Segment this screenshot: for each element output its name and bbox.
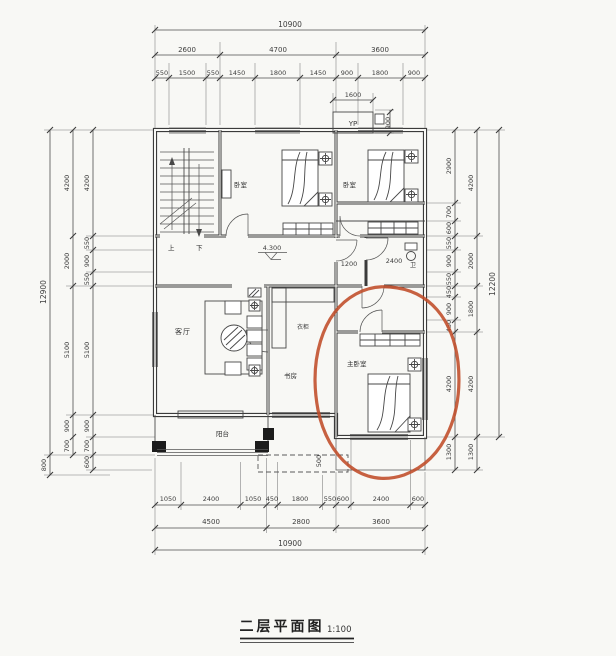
dim-top-det-8: 900	[408, 69, 420, 77]
dim-right-det-5: 550	[445, 273, 453, 285]
dim-top-det-2: 550	[207, 69, 219, 77]
roof-overhang-dashed	[258, 455, 348, 472]
label-balcony: 阳台	[216, 429, 229, 438]
canopy-fixture	[375, 114, 384, 124]
dim-top-det-1: 1500	[179, 69, 196, 77]
dim-top-total: 10900	[278, 20, 302, 29]
label-canopy: YP	[348, 120, 358, 128]
dim-top-det-4: 1800	[270, 69, 287, 77]
dim-right-det-3: 550	[445, 237, 453, 249]
label-wardrobe: 衣柜	[297, 323, 309, 331]
toilet-fixture	[405, 243, 417, 261]
floor-plan-drawing: 10900 2600 4700 3600 550 1500 550 1450 1…	[0, 0, 616, 656]
dim-bath-width: 2400	[386, 257, 403, 265]
level-value: 4.300	[263, 244, 282, 252]
dim-bot-seg-2: 3600	[372, 518, 390, 526]
drawing-title: 二层平面图	[240, 619, 325, 635]
dim-top-det-7: 1800	[372, 69, 389, 77]
dim-right-det-0: 2900	[445, 158, 453, 175]
dim-left-seg-4: 700	[63, 440, 71, 452]
dim-right-total: 12200	[488, 272, 497, 296]
label-master: 主卧室	[347, 359, 367, 368]
dim-canopy-depth: 900	[384, 117, 392, 129]
dining-set	[205, 288, 262, 376]
balcony-column-left	[152, 441, 166, 452]
dim-canopy-width: 1600	[345, 91, 362, 99]
dim-top-seg-1: 4700	[269, 46, 287, 54]
floor-plan-page: 10900 2600 4700 3600 550 1500 550 1450 1…	[0, 0, 616, 656]
balcony-column-right	[255, 441, 269, 452]
dim-bot-det-8: 600	[412, 495, 424, 503]
label-bedroom-mid: 卧室	[234, 180, 248, 189]
cloak-wardrobe	[272, 288, 334, 348]
drawing-scale: 1:100	[327, 625, 352, 635]
dim-right-det-2: 600	[445, 222, 453, 234]
dim-right-det-6: 450	[445, 286, 453, 298]
balcony-railing	[157, 450, 268, 456]
dim-left-det-5: 900	[83, 420, 91, 432]
title-block: 二层平面图 1:100	[240, 619, 355, 643]
dim-bot-seg-0: 4500	[202, 518, 220, 526]
dim-bot-total: 10900	[278, 539, 302, 548]
label-stair-down: 下	[196, 244, 203, 252]
dim-left-seg-3: 900	[63, 420, 71, 432]
dim-bot-det-3: 450	[266, 495, 278, 503]
staircase	[160, 148, 214, 237]
dim-right-det-10: 1300	[445, 444, 453, 461]
dim-bot-det-7: 2400	[373, 495, 390, 503]
dim-left-det-7: 600	[83, 456, 91, 468]
dim-bot-det-2: 1050	[245, 495, 262, 503]
dim-left-det-0: 4200	[83, 175, 91, 192]
dim-bot-det-4: 1800	[292, 495, 309, 503]
dim-left-det-1: 550	[83, 237, 91, 249]
dim-bot-det-0: 1050	[160, 495, 177, 503]
dim-top-det-6: 900	[341, 69, 353, 77]
dim-left-seg-2: 5100	[63, 342, 71, 359]
dim-right-seg-1: 2000	[467, 253, 475, 270]
dim-bot-seg-1: 2800	[292, 518, 310, 526]
extension-lines	[44, 25, 505, 555]
label-study: 书房	[284, 371, 297, 380]
dim-top-det-3: 1450	[229, 69, 246, 77]
label-bedroom-right: 卧室	[343, 180, 357, 189]
bed-middle-bedroom	[222, 150, 332, 206]
bottom-dimensions: 1050 2400 1050 450 1800 550 600 2400 600…	[160, 495, 424, 548]
dimension-lines	[47, 27, 502, 553]
bed-right-bedroom	[368, 150, 418, 202]
corner-column	[263, 428, 274, 440]
dim-right-seg-2: 1800	[467, 301, 475, 318]
dim-right-det-1: 700	[445, 206, 453, 218]
dim-top-det-0: 550	[156, 69, 168, 77]
dim-left-below: 800	[40, 459, 48, 471]
dim-top-seg-2: 3600	[371, 46, 389, 54]
top-dimensions: 10900 2600 4700 3600 550 1500 550 1450 1…	[156, 20, 420, 129]
dim-right-seg-4: 1300	[467, 444, 475, 461]
dim-hall-width: 1200	[341, 260, 358, 268]
dim-right-det-7: 900	[445, 303, 453, 315]
dim-right-det-4: 900	[445, 255, 453, 267]
dim-top-det-5: 1450	[310, 69, 327, 77]
dim-right-seg-3: 4200	[467, 376, 475, 393]
label-living: 客厅	[175, 327, 191, 336]
dim-left-total: 12900	[39, 280, 48, 304]
left-dimensions: 12900 4200 2000 5100 900 700 800 4200 55…	[39, 175, 91, 471]
dim-bot-det-6: 600	[337, 495, 349, 503]
dim-left-det-3: 550	[83, 273, 91, 285]
dim-left-det-2: 900	[83, 255, 91, 267]
dim-left-det-4: 5100	[83, 342, 91, 359]
label-toilet: 卫	[410, 262, 416, 269]
level-marker	[258, 253, 287, 260]
dim-overhang: 500	[315, 455, 323, 467]
bed-master-bedroom	[368, 358, 421, 432]
dim-left-seg-1: 2000	[63, 253, 71, 270]
dim-left-seg-0: 4200	[63, 175, 71, 192]
dim-left-det-6: 700	[83, 440, 91, 452]
dim-right-seg-0: 4200	[467, 175, 475, 192]
dim-bot-det-5: 550	[324, 495, 336, 503]
label-stair-up: 上	[168, 243, 175, 252]
dim-bot-det-1: 2400	[203, 495, 220, 503]
dim-right-det-9: 4200	[445, 376, 453, 393]
dim-top-seg-0: 2600	[178, 46, 196, 54]
